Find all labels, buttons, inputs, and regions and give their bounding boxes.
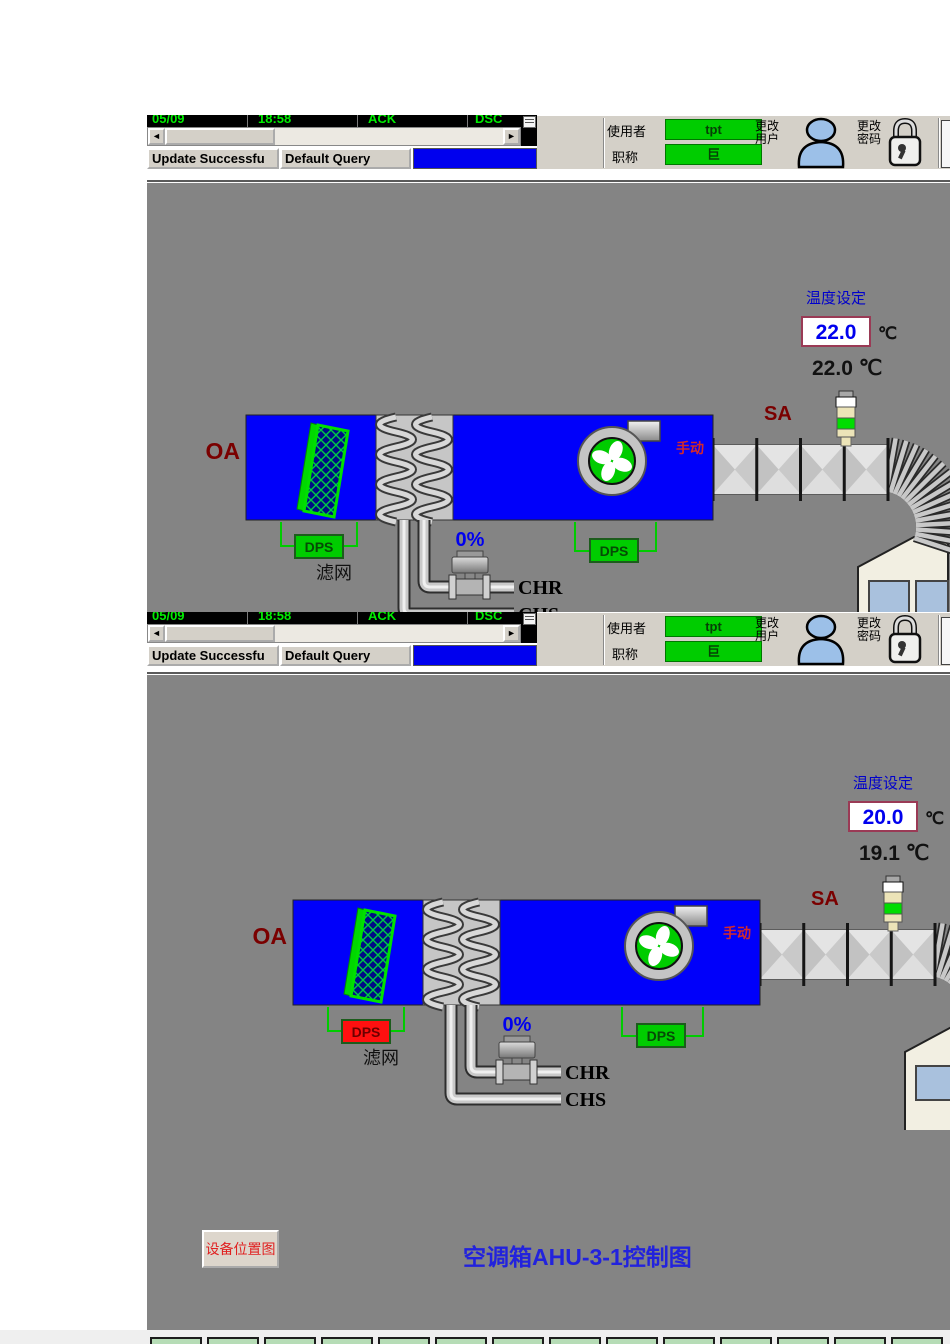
user-panel: 使用者 职称 tpt 巨 更改用户 更改密码 bbox=[537, 115, 950, 169]
alarm-scroll-area: 05/09 18:58 ACK DSC ◄ ► Update Successfu… bbox=[147, 115, 537, 169]
room-icon bbox=[905, 1022, 950, 1130]
filter-dps[interactable]: DPS bbox=[281, 522, 357, 558]
valve-position-value: 0% bbox=[456, 529, 485, 551]
bottom-nav-button[interactable] bbox=[720, 1337, 772, 1344]
status-blue-field bbox=[413, 148, 537, 169]
alarm-scroll-area: 05/09 18:58 ACK DSC ◄ ► Update Successfu… bbox=[147, 612, 537, 666]
sa-label: SA bbox=[764, 403, 792, 425]
page-title: 空调箱AHU-3-1控制图 bbox=[463, 1238, 692, 1272]
scrollbar-thumb[interactable] bbox=[165, 128, 275, 145]
change-password-label: 更改密码 bbox=[852, 120, 886, 146]
alarm-strip: 05/09 18:58 ACK DSC bbox=[147, 612, 521, 624]
supply-duct bbox=[713, 438, 888, 501]
window-icon bbox=[523, 116, 536, 128]
cooling-coil-icon bbox=[376, 415, 453, 522]
equipment-location-button[interactable]: 设备位置图 bbox=[202, 1230, 279, 1268]
query-status-button[interactable]: Default Query bbox=[280, 148, 411, 169]
change-user-icon[interactable] bbox=[793, 614, 850, 666]
valve-position-value: 0% bbox=[503, 1014, 532, 1036]
temp-sensor-icon bbox=[836, 391, 856, 446]
svg-text:DPS: DPS bbox=[600, 543, 629, 559]
role-value-field: 巨 bbox=[665, 641, 762, 662]
window-icon bbox=[523, 613, 536, 625]
change-password-label: 更改密码 bbox=[852, 617, 886, 643]
bottom-nav-button[interactable] bbox=[207, 1337, 259, 1344]
fan-dps[interactable]: DPS bbox=[575, 522, 656, 562]
toolbar-2: 05/09 18:58 ACK DSC ◄ ► Update Successfu… bbox=[147, 612, 950, 666]
chs-label: CHS bbox=[518, 604, 559, 612]
chs-label: CHS bbox=[565, 1089, 606, 1111]
filter-label: 滤网 bbox=[363, 1048, 399, 1068]
role-value-field: 巨 bbox=[665, 144, 762, 165]
change-user-label: 更改用户 bbox=[750, 120, 784, 146]
oa-label: OA bbox=[253, 923, 288, 949]
setpoint-label: 温度设定 bbox=[806, 290, 866, 307]
svg-text:DPS: DPS bbox=[305, 539, 334, 555]
toolbar-1: 05/09 18:58 ACK DSC ◄ ► Update Successfu… bbox=[147, 115, 950, 169]
fan-mode-label: 手动 bbox=[676, 440, 704, 456]
user-value-field: tpt bbox=[665, 119, 762, 140]
temp-sensor-icon bbox=[883, 876, 903, 931]
alarm-date: 05/09 bbox=[152, 612, 185, 623]
sa-label: SA bbox=[811, 888, 839, 910]
bottom-nav-button[interactable] bbox=[378, 1337, 430, 1344]
alarm-time: 18:58 bbox=[258, 115, 291, 126]
valve-icon bbox=[496, 1036, 537, 1084]
role-label: 职称 bbox=[612, 147, 638, 166]
status-blue-field bbox=[413, 645, 537, 666]
bottom-nav-button[interactable] bbox=[777, 1337, 829, 1344]
supply-temp-value: 22.0 ℃ bbox=[812, 357, 882, 380]
filter-dps[interactable]: DPS bbox=[328, 1007, 404, 1043]
scroll-right-arrow-icon[interactable]: ► bbox=[503, 128, 520, 145]
bottom-nav-button[interactable] bbox=[435, 1337, 487, 1344]
change-user-icon[interactable] bbox=[793, 117, 850, 169]
role-label: 职称 bbox=[612, 644, 638, 663]
ahu-diagram-1: 手动 OA SA 温度设定 22.0 ℃ 22.0 ℃ bbox=[176, 270, 950, 612]
bottom-nav-button[interactable] bbox=[606, 1337, 658, 1344]
ahu-view-2: 手动 OA SA 温度设定 20.0 ℃ 19.1 ℃ 0% bbox=[147, 672, 950, 1332]
alarm-time: 18:58 bbox=[258, 612, 291, 623]
user-label: 使用者 bbox=[607, 121, 646, 140]
supply-duct bbox=[760, 923, 935, 986]
setpoint-unit: ℃ bbox=[925, 809, 944, 828]
alarm-strip: 05/09 18:58 ACK DSC bbox=[147, 115, 521, 127]
bottom-button-row bbox=[150, 1337, 943, 1344]
change-password-icon[interactable] bbox=[886, 614, 924, 666]
user-value-field: tpt bbox=[665, 616, 762, 637]
setpoint-label: 温度设定 bbox=[853, 775, 913, 792]
flex-duct-icon bbox=[886, 438, 950, 554]
cooling-coil-icon bbox=[423, 900, 500, 1007]
valve-icon bbox=[449, 551, 490, 599]
bottom-nav-button[interactable] bbox=[321, 1337, 373, 1344]
hmi-screen: 05/09 18:58 ACK DSC ◄ ► Update Successfu… bbox=[0, 0, 950, 1344]
alarm-ack: ACK bbox=[368, 115, 396, 126]
setpoint-value: 20.0 bbox=[863, 806, 904, 829]
update-status-button[interactable]: Update Successfu bbox=[147, 645, 279, 666]
alarm-strip-end bbox=[521, 612, 537, 643]
setpoint-unit: ℃ bbox=[878, 324, 897, 343]
alarm-strip-end bbox=[521, 115, 537, 146]
fan-dps[interactable]: DPS bbox=[622, 1007, 703, 1047]
chr-label: CHR bbox=[565, 1062, 610, 1084]
bottom-nav-button[interactable] bbox=[834, 1337, 886, 1344]
user-panel: 使用者 职称 tpt 巨 更改用户 更改密码 bbox=[537, 612, 950, 666]
scroll-left-arrow-icon[interactable]: ◄ bbox=[148, 625, 165, 642]
setpoint-value: 22.0 bbox=[816, 321, 857, 344]
filter-label: 滤网 bbox=[316, 563, 352, 583]
alarm-dsc: DSC bbox=[475, 612, 502, 623]
alarm-dsc: DSC bbox=[475, 115, 502, 126]
alarm-scrollbar[interactable]: ◄ ► bbox=[147, 127, 521, 146]
ahu-diagram-2: 手动 OA SA 温度设定 20.0 ℃ 19.1 ℃ 0% bbox=[223, 755, 950, 1130]
fan-mode-label: 手动 bbox=[723, 925, 751, 941]
oa-label: OA bbox=[206, 438, 241, 464]
query-status-button[interactable]: Default Query bbox=[280, 645, 411, 666]
scroll-right-arrow-icon[interactable]: ► bbox=[503, 625, 520, 642]
bottom-nav-button[interactable] bbox=[891, 1337, 943, 1344]
chr-label: CHR bbox=[518, 577, 563, 599]
partial-panel bbox=[941, 120, 950, 168]
ahu-view-1: 手动 OA SA 温度设定 22.0 ℃ 22.0 ℃ bbox=[147, 180, 950, 612]
update-status-button[interactable]: Update Successfu bbox=[147, 148, 279, 169]
change-user-label: 更改用户 bbox=[750, 617, 784, 643]
alarm-ack: ACK bbox=[368, 612, 396, 623]
user-label: 使用者 bbox=[607, 618, 646, 637]
alarm-scrollbar[interactable]: ◄ ► bbox=[147, 624, 521, 643]
bottom-nav-button[interactable] bbox=[264, 1337, 316, 1344]
scrollbar-thumb[interactable] bbox=[165, 625, 275, 642]
bottom-nav-button[interactable] bbox=[492, 1337, 544, 1344]
supply-temp-value: 19.1 ℃ bbox=[859, 842, 929, 865]
scroll-left-arrow-icon[interactable]: ◄ bbox=[148, 128, 165, 145]
change-password-icon[interactable] bbox=[886, 117, 924, 169]
bottom-nav-button[interactable] bbox=[150, 1337, 202, 1344]
bottom-nav-button[interactable] bbox=[549, 1337, 601, 1344]
partial-panel bbox=[941, 617, 950, 665]
svg-text:DPS: DPS bbox=[352, 1024, 381, 1040]
svg-text:DPS: DPS bbox=[647, 1028, 676, 1044]
bottom-nav-button[interactable] bbox=[663, 1337, 715, 1344]
alarm-date: 05/09 bbox=[152, 115, 185, 126]
